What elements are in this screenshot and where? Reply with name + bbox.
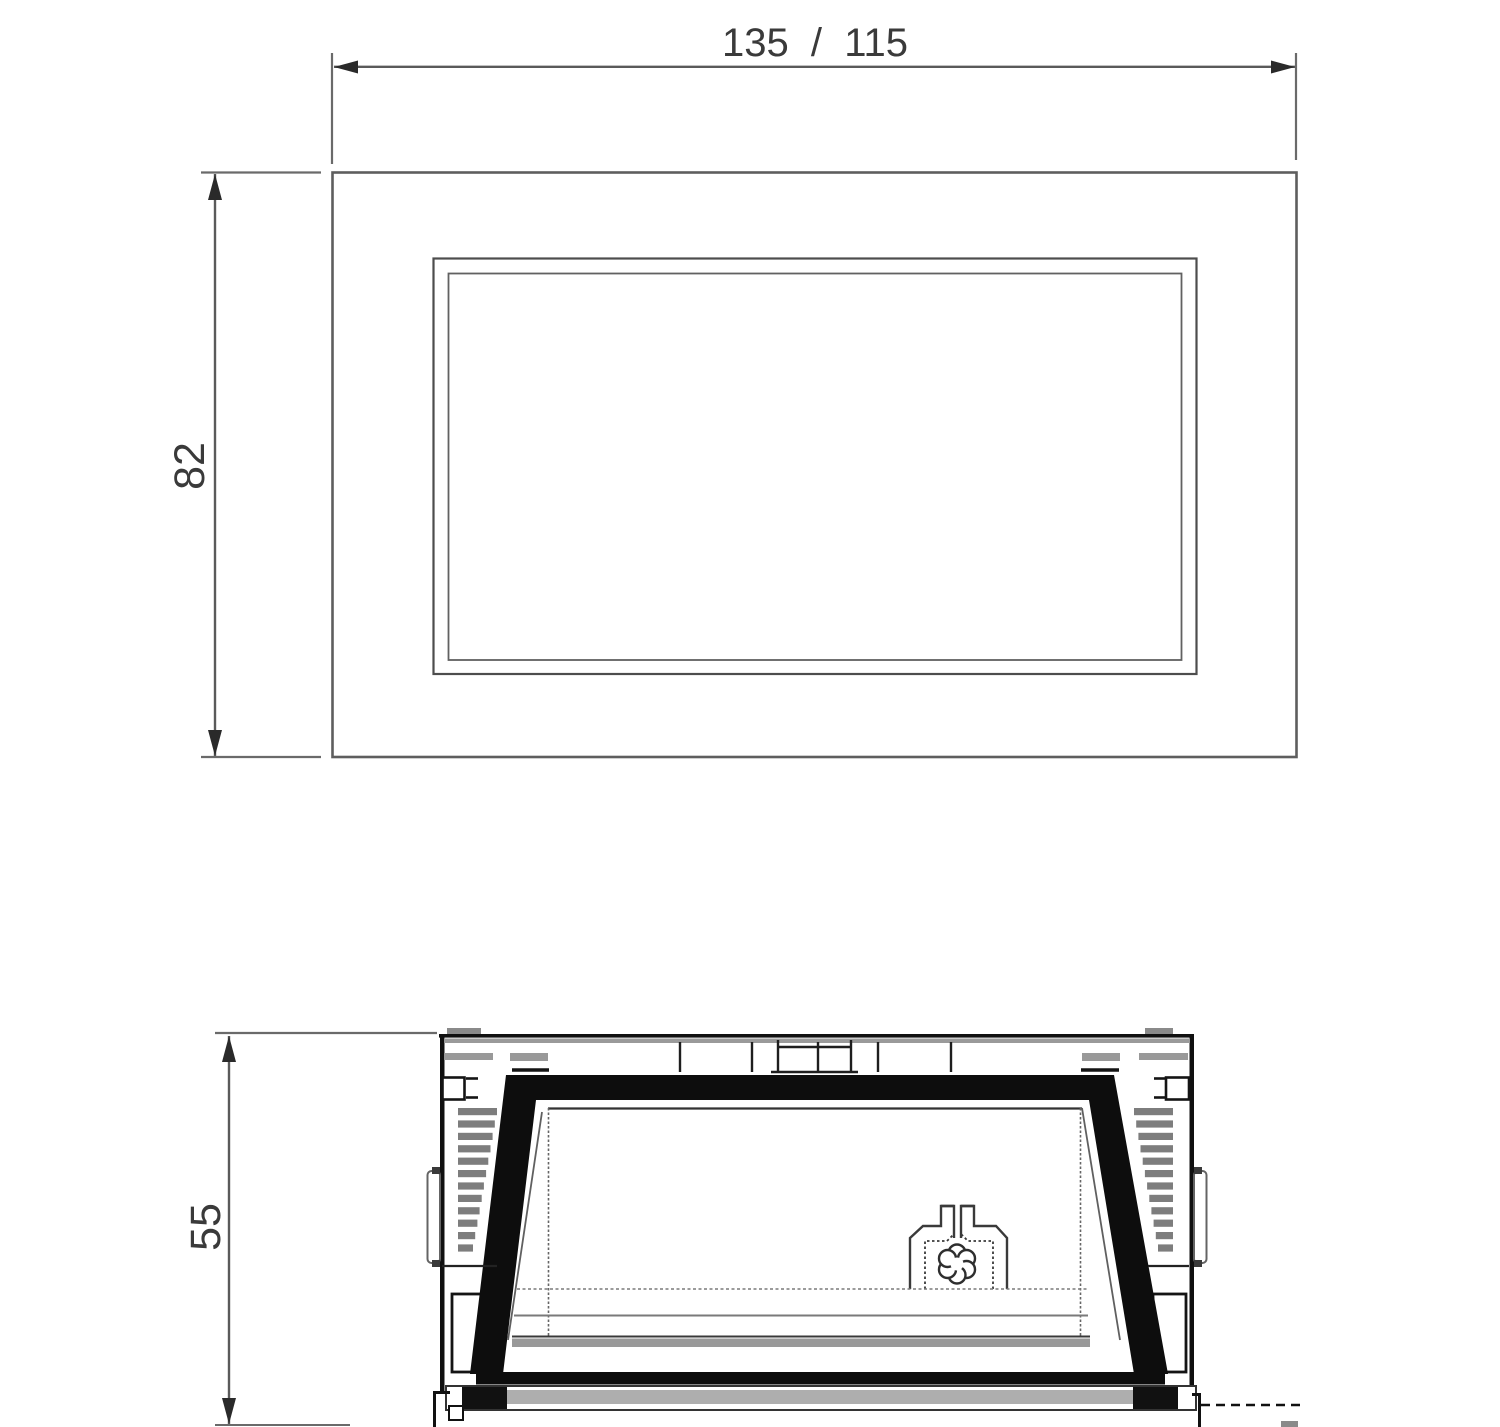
svg-text:135 / 115: 135 / 115: [722, 21, 908, 65]
svg-text:55: 55: [182, 1203, 230, 1251]
svg-text:82: 82: [166, 442, 214, 490]
